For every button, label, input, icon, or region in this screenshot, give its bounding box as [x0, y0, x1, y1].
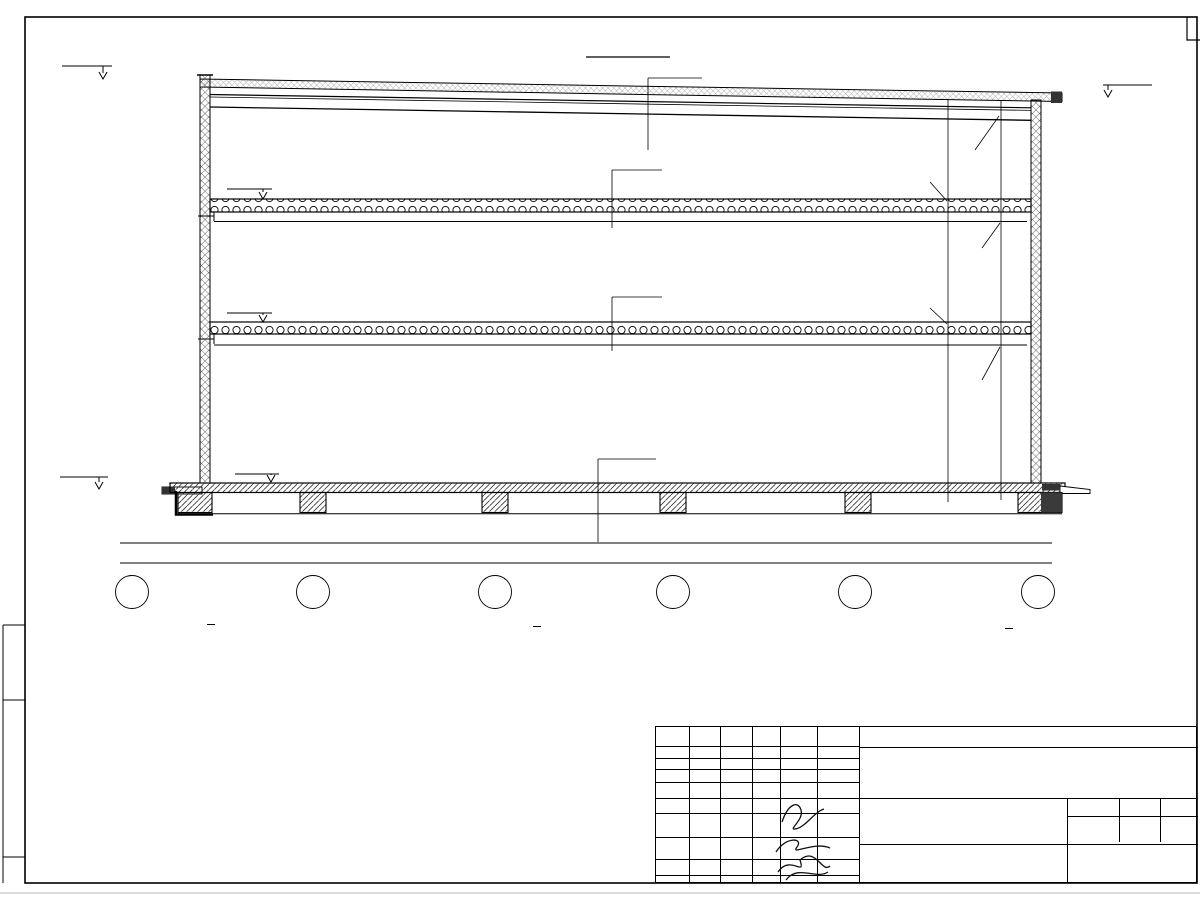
- firm-name: [1067, 844, 1198, 884]
- composition-2-title: [848, 610, 1170, 626]
- composition-list-3: [360, 608, 656, 733]
- sheet-number: [1119, 816, 1160, 844]
- upper-slab: [210, 199, 1031, 212]
- title-block: [655, 726, 1197, 883]
- composition-1-title: [81, 606, 340, 622]
- lower-slab: [210, 322, 1031, 334]
- building-section: [162, 75, 1090, 515]
- col-data: [817, 782, 859, 798]
- composition-list-1: [33, 606, 340, 731]
- col-list: [720, 782, 752, 798]
- sheets-label: [1160, 798, 1198, 816]
- sheet-title: [859, 844, 1067, 884]
- signature-icon: [778, 798, 828, 836]
- col-izm: [656, 782, 689, 798]
- signature-icon: [772, 834, 836, 882]
- left-wall: [200, 75, 210, 483]
- project-name: [862, 749, 1195, 796]
- row-role: [659, 813, 721, 837]
- right-wall: [1031, 100, 1041, 483]
- ground-slab: [170, 483, 1065, 493]
- row-role: [659, 859, 721, 875]
- row-role: [659, 837, 721, 859]
- col-podp: [780, 782, 817, 798]
- stage-label: [1067, 798, 1119, 816]
- right-dimension-chains: [930, 99, 1001, 502]
- grid-bubbles: [116, 576, 1055, 609]
- sheets-total: [1160, 816, 1198, 844]
- elevation-markers: [60, 66, 1152, 489]
- organization: [859, 798, 1067, 844]
- roof-edge-cap: [1051, 92, 1062, 104]
- foundations: [176, 491, 1062, 515]
- drawing-sheet: [0, 0, 1200, 900]
- grid-and-dimensions: [116, 543, 1055, 609]
- col-kol: [689, 782, 720, 798]
- composition-leaders: [598, 78, 702, 542]
- stage-value: [1067, 816, 1119, 844]
- roof-deck: [200, 79, 1062, 102]
- sheet-label: [1119, 798, 1160, 816]
- doc-number: [859, 727, 1198, 747]
- composition-list-2: [848, 610, 1170, 681]
- roof-beam-bottom: [210, 107, 1031, 120]
- col-doc: [752, 782, 780, 798]
- composition-3-title: [418, 608, 656, 624]
